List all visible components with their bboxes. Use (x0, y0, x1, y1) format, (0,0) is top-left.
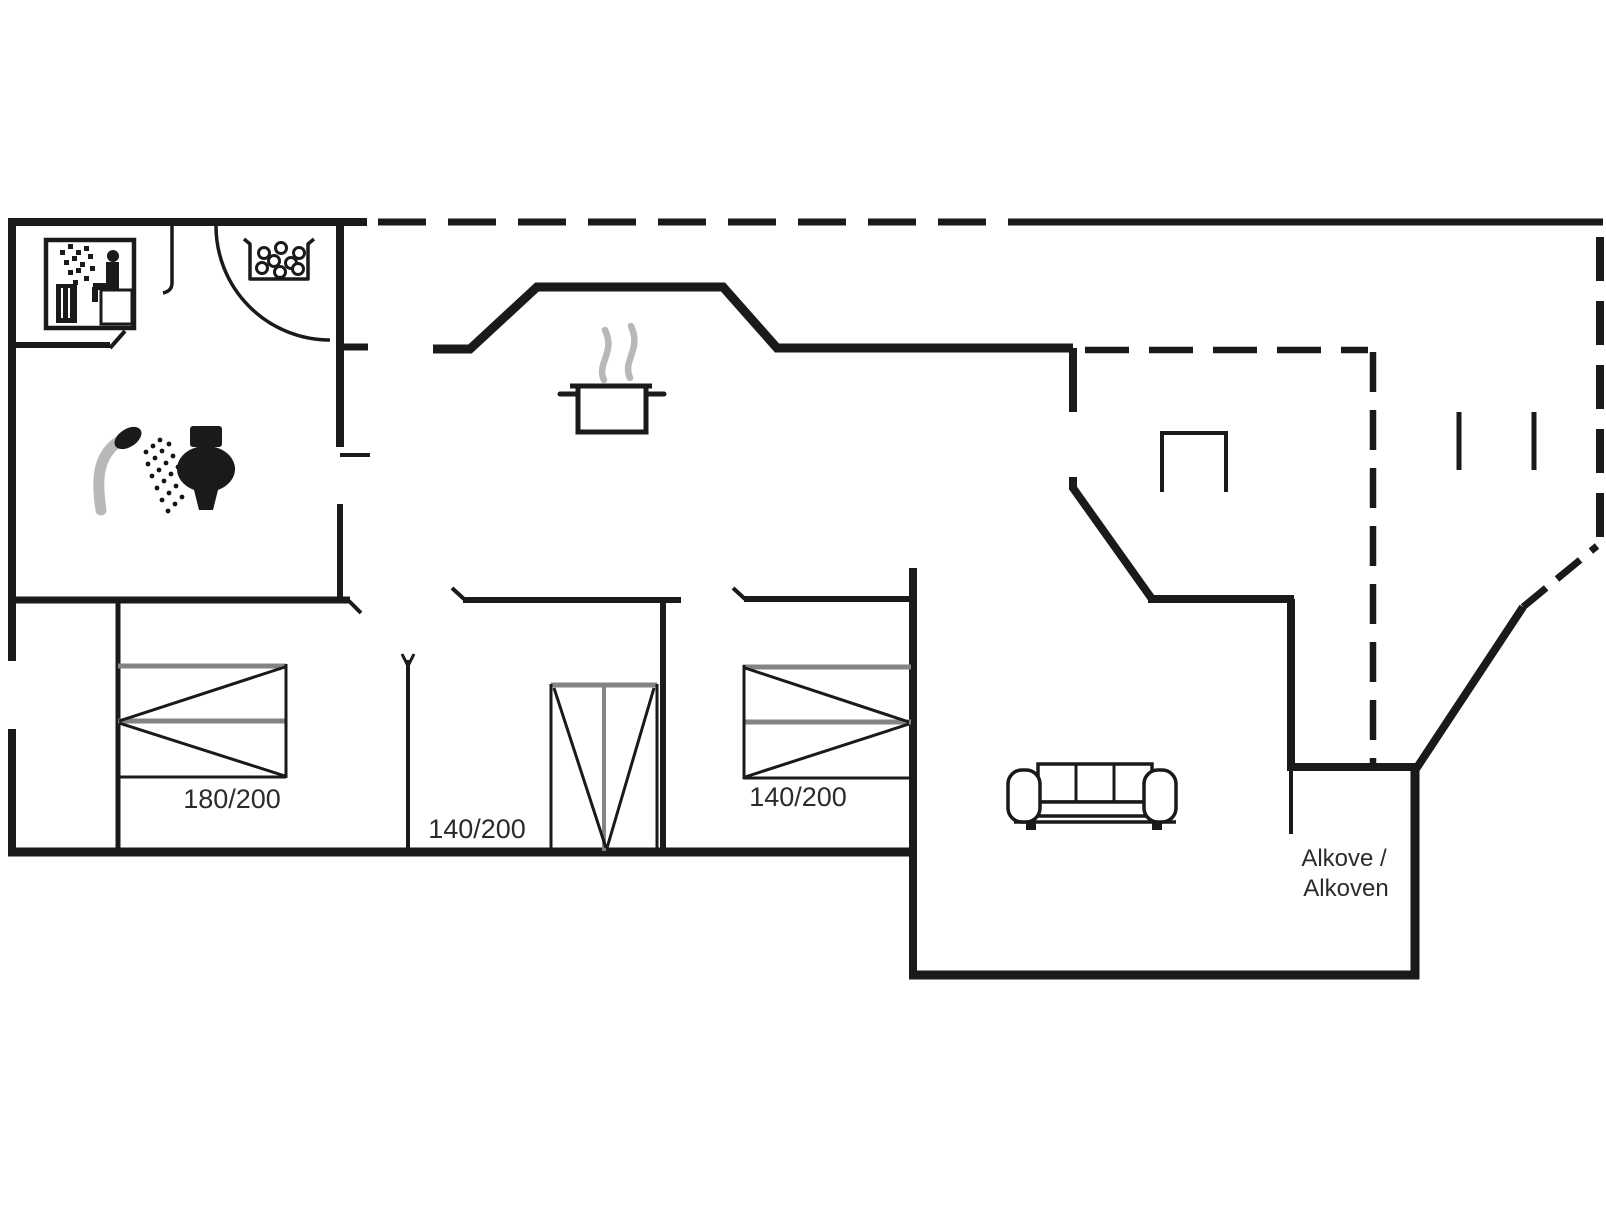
floor-plan: 180/200 140/200 140/200 Alkove / Alkoven (0, 0, 1606, 1205)
floor-plan-drawing: 180/200 140/200 140/200 Alkove / Alkoven (0, 0, 1606, 1205)
cooking-pot-icon (560, 326, 664, 432)
alcove-label-line2: Alkoven (1303, 875, 1388, 902)
bed-double-180-icon (118, 664, 286, 778)
bed-middle-size-label: 140/200 (428, 814, 526, 844)
bed-140-vertical-icon (551, 684, 657, 851)
bed-right-size-label: 140/200 (749, 782, 847, 812)
terrace-table (1162, 433, 1226, 492)
alcove-label-line1: Alkove / (1301, 845, 1387, 872)
bed-double-size-label: 180/200 (183, 784, 281, 814)
bed-140-icon (743, 665, 911, 779)
toilet-icon (177, 426, 235, 510)
terrace-posts (1459, 412, 1534, 470)
sofa-icon (1008, 764, 1176, 830)
shower-icon (99, 422, 186, 513)
entrance-door-arc (216, 226, 330, 340)
whirlpool-stones-icon (244, 239, 314, 279)
sauna-icon (46, 240, 134, 328)
